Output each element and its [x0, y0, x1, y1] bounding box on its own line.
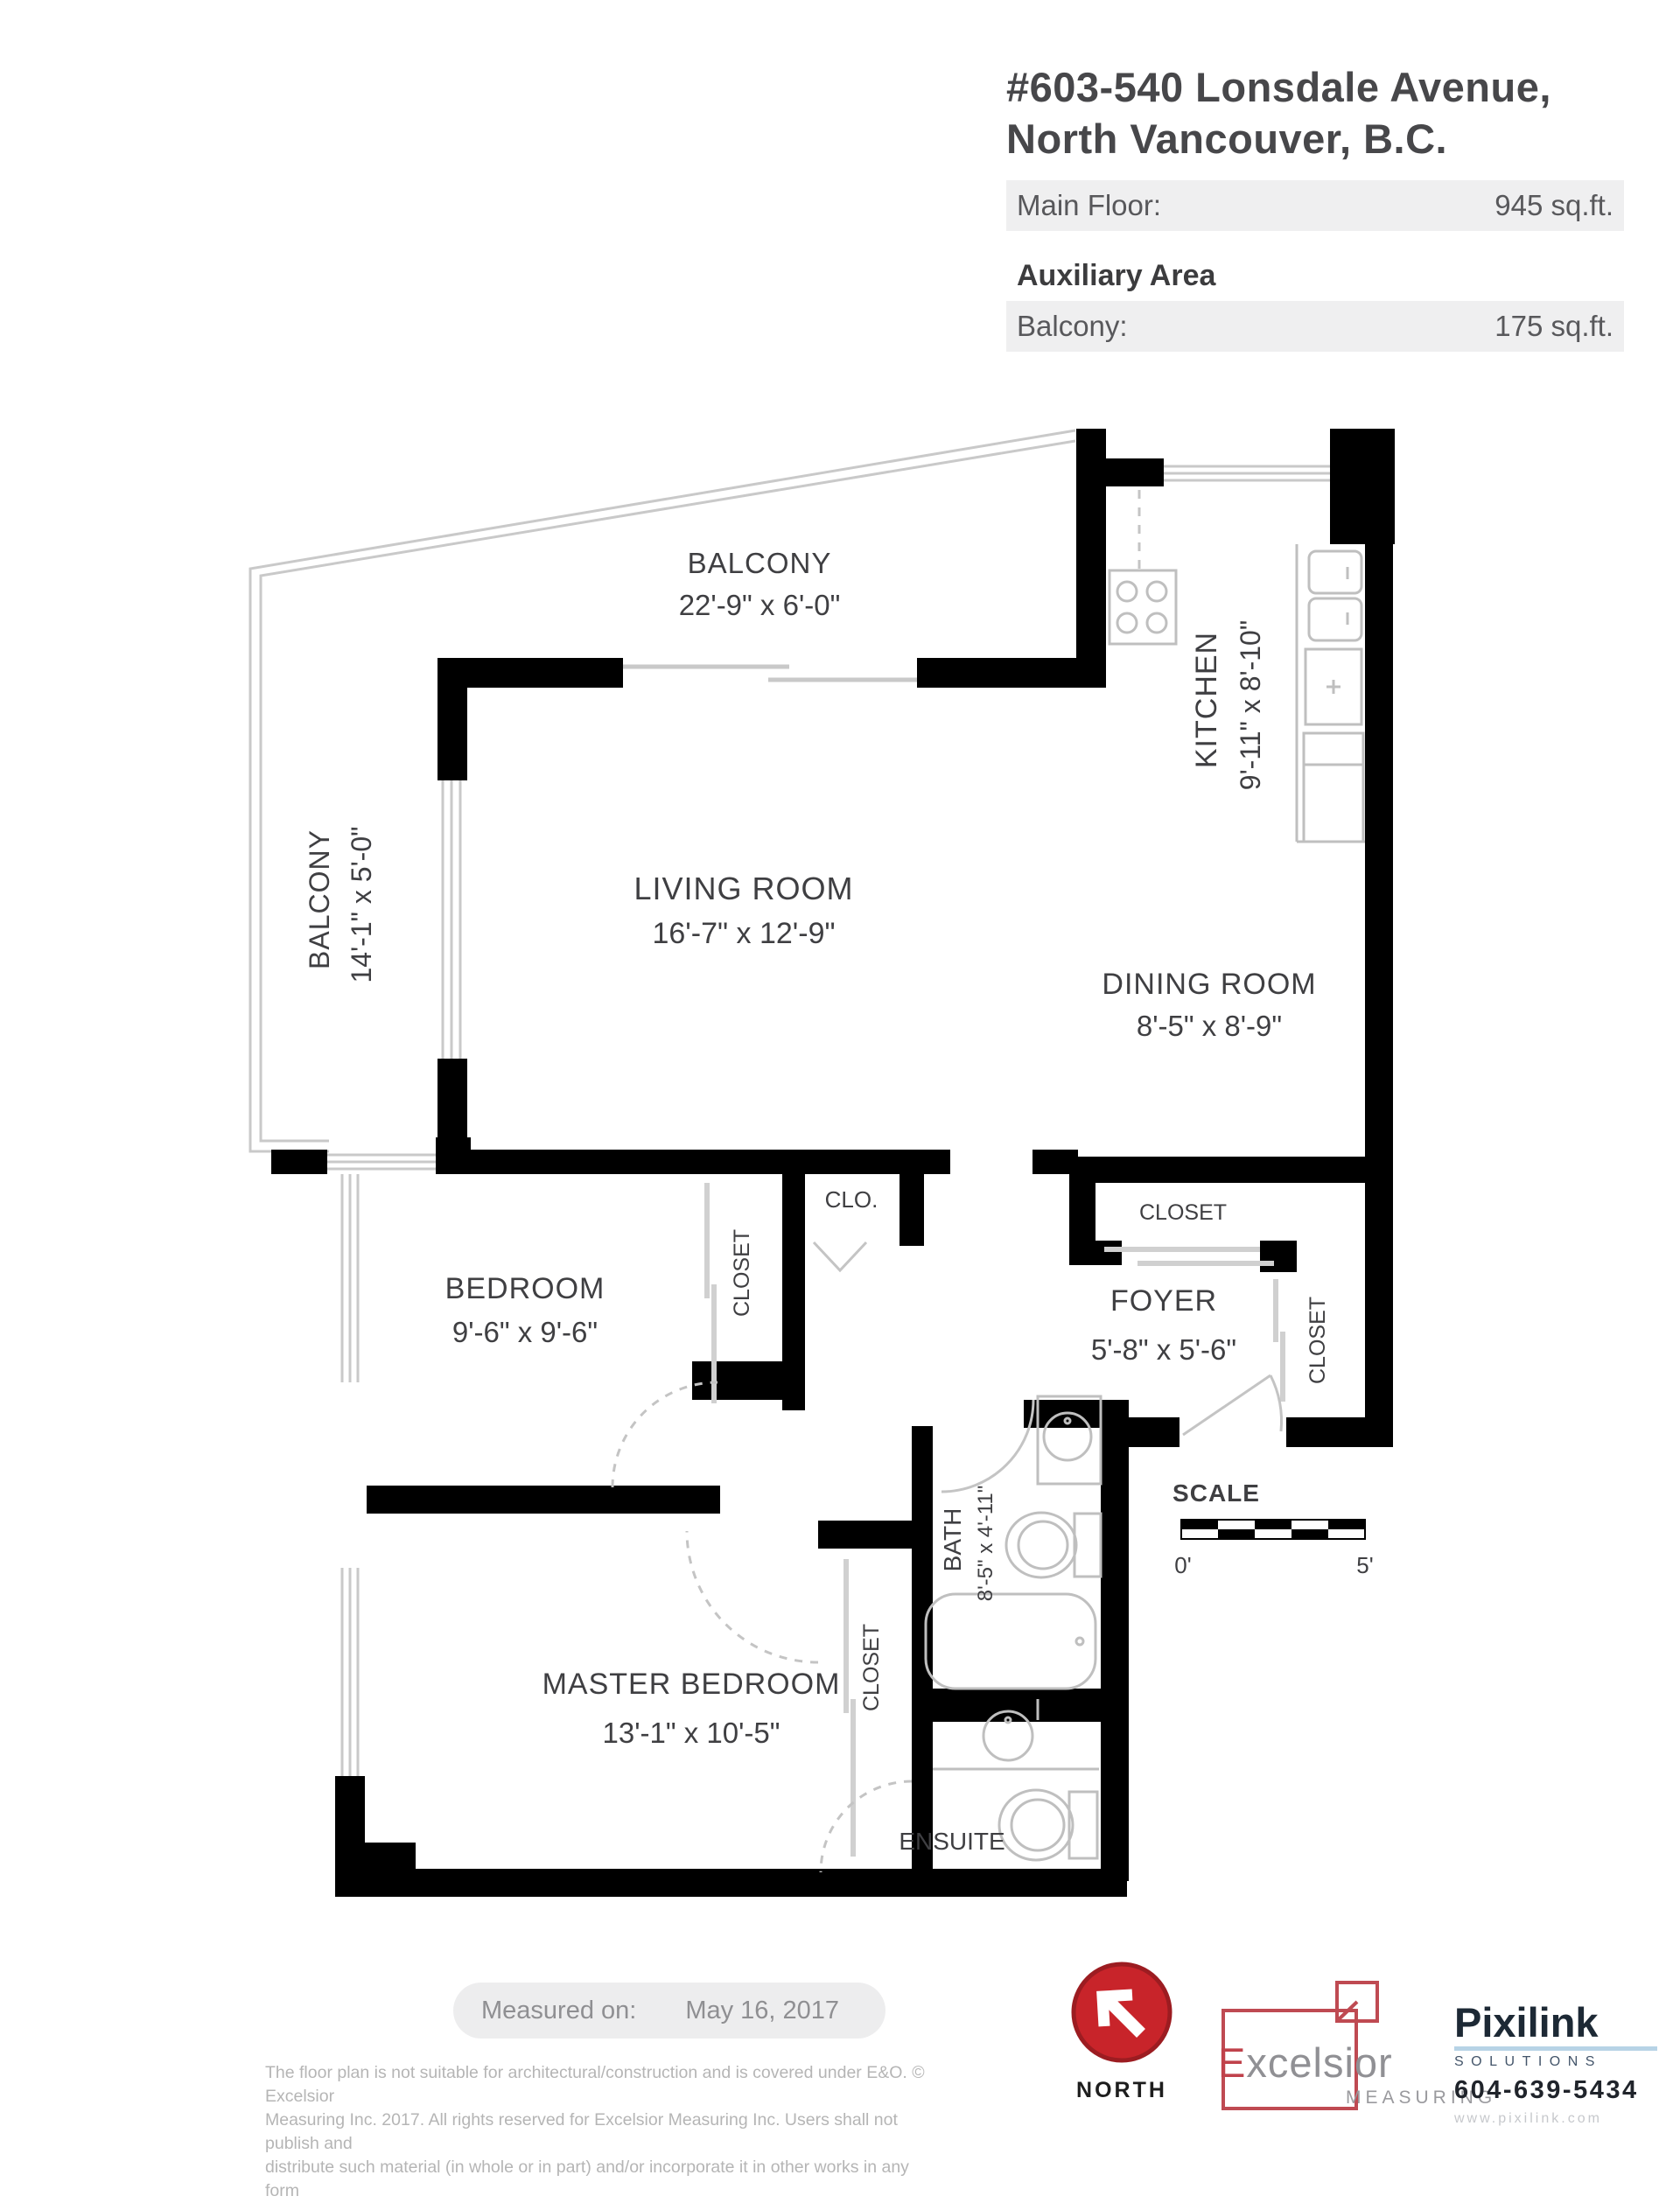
scale-start: 0': [1174, 1552, 1191, 1578]
address-line1: #603-540 Lonsdale Avenue,: [1006, 61, 1627, 113]
main-floor-label: Main Floor:: [1017, 189, 1161, 222]
disclaimer-line2: Measuring Inc. 2017. All rights reserved…: [265, 2109, 948, 2156]
balcony-left-label: BALCONY: [304, 829, 335, 969]
room-labels: BALCONY 22'-9" x 6'-0" LIVING ROOM 16'-7…: [304, 547, 1374, 1855]
master-closet-label: CLOSET: [859, 1624, 884, 1711]
pixilink-solutions-label: SOLUTIONS: [1454, 2054, 1673, 2070]
scale-label: SCALE: [1172, 1479, 1260, 1507]
dishwasher-icon: [1305, 649, 1361, 724]
excelsior-initial: E: [1218, 2039, 1246, 2086]
page-title: #603-540 Lonsdale Avenue, North Vancouve…: [1006, 61, 1627, 164]
dining-room-dims: 8'-5" x 8'-9": [1137, 1010, 1282, 1042]
fixtures: [926, 544, 1365, 1860]
stove-icon: [1109, 570, 1176, 644]
master-bedroom-label: MASTER BEDROOM: [542, 1668, 841, 1701]
bath-toilet-icon: [1006, 1513, 1101, 1577]
bath-dims: 8'-5" x 4'-11": [974, 1486, 997, 1601]
pixilink-phone: 604-639-5434: [1454, 2076, 1673, 2105]
measured-on-badge: Measured on: May 16, 2017: [453, 1983, 885, 2039]
balcony-top-dims: 22'-9" x 6'-0": [679, 589, 841, 621]
bedroom-label: BEDROOM: [445, 1272, 605, 1305]
scale-bar: [1181, 1520, 1365, 1539]
balcony-area-row: Balcony: 175 sq.ft.: [1006, 301, 1624, 352]
windows: [327, 466, 1330, 1776]
excelsior-rest: xcelsior: [1246, 2039, 1392, 2086]
main-floor-row: Main Floor: 945 sq.ft.: [1006, 180, 1624, 231]
closet-doors: [707, 1183, 1283, 1857]
measured-on-label: Measured on:: [481, 1997, 636, 2025]
auxiliary-area-heading: Auxiliary Area: [1017, 259, 1215, 293]
balcony-left-dims: 14'-1" x 5'-0": [346, 826, 377, 983]
foyer-label: FOYER: [1110, 1284, 1217, 1318]
living-room-label: LIVING ROOM: [633, 871, 853, 906]
pixilink-logo: Pixilink SOLUTIONS 604-639-5434 www.pixi…: [1454, 2002, 1673, 2127]
master-bedroom-dims: 13'-1" x 10'-5": [603, 1717, 780, 1749]
clo-label: CLO.: [825, 1186, 878, 1213]
balcony-outline: [250, 430, 1075, 1151]
dining-room-label: DINING ROOM: [1102, 968, 1316, 1001]
living-room-dims: 16'-7" x 12'-9": [652, 917, 835, 950]
bedroom-dims: 9'-6" x 9'-6": [452, 1316, 598, 1348]
walls: [271, 429, 1395, 1897]
foyer-closet-right-label: CLOSET: [1305, 1297, 1330, 1384]
excelsior-logo: Excelsior MEASURING: [1216, 1976, 1487, 2124]
kitchen-dims: 9'-11" x 8'-10": [1235, 620, 1266, 790]
foyer-dims: 5'-8" x 5'-6": [1091, 1333, 1236, 1366]
ensuite-label: ENSUITE: [899, 1828, 1004, 1855]
floorplan-page: { "header": { "address_line1": "#603-540…: [0, 0, 1680, 2176]
pixilink-website: www.pixilink.com: [1454, 2111, 1673, 2127]
north-arrow-icon: [1069, 1960, 1174, 2065]
fridge-icon: [1304, 733, 1363, 842]
disclaimer-text: The floor plan is not suitable for archi…: [265, 2061, 948, 2203]
balcony-area-label: Balcony:: [1017, 310, 1128, 343]
address-line2: North Vancouver, B.C.: [1006, 113, 1627, 164]
ensuite-sink-icon: [933, 1699, 1099, 1769]
pixilink-name: Pixilink: [1454, 2002, 1673, 2044]
bath-label: BATH: [939, 1508, 966, 1572]
balcony-area-value: 175 sq.ft.: [1494, 310, 1613, 343]
scale-end: 5': [1356, 1552, 1373, 1578]
balcony-top-label: BALCONY: [688, 547, 832, 579]
door-swings: [612, 490, 1282, 1872]
pixilink-underline: [1454, 2046, 1657, 2051]
bedroom-closet-label: CLOSET: [730, 1229, 754, 1317]
kitchen-sink-icon: [1309, 551, 1361, 640]
main-floor-value: 945 sq.ft.: [1494, 189, 1613, 222]
north-indicator: NORTH: [1069, 1960, 1174, 2103]
disclaimer-line1: The floor plan is not suitable for archi…: [265, 2061, 948, 2109]
bath-sink-icon: [1038, 1396, 1101, 1484]
measured-on-date: May 16, 2017: [685, 1997, 839, 2025]
bathtub-icon: [926, 1594, 1095, 1689]
foyer-closet-top-label: CLOSET: [1139, 1200, 1227, 1225]
disclaimer-line3: distribute such material (in whole or in…: [265, 2156, 948, 2203]
north-label: NORTH: [1069, 2078, 1174, 2103]
ensuite-toilet-icon: [999, 1790, 1097, 1860]
excelsior-name: Excelsior: [1218, 2039, 1393, 2087]
kitchen-label: KITCHEN: [1190, 632, 1223, 768]
